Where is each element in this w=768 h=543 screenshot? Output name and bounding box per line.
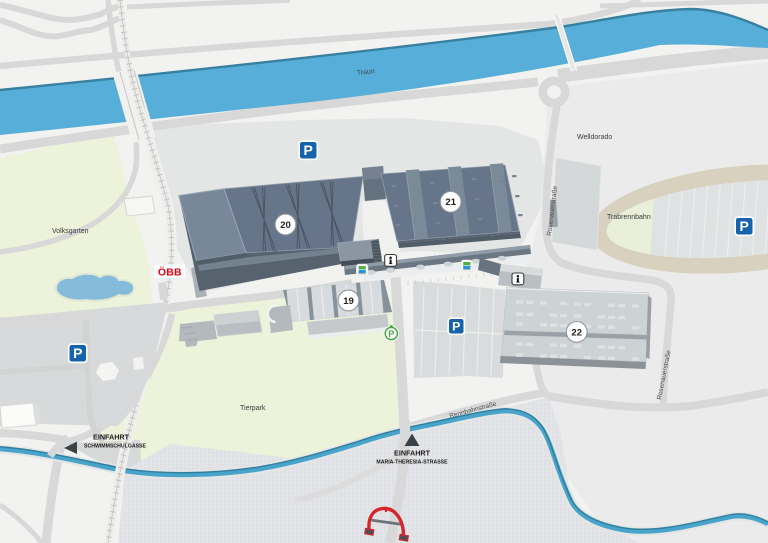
svg-text:P: P [452, 319, 460, 333]
svg-text:EINFAHRT: EINFAHRT [93, 433, 130, 442]
svg-text:P: P [73, 345, 82, 361]
svg-text:P: P [304, 142, 313, 158]
svg-text:Welldorado: Welldorado [577, 134, 612, 141]
svg-text:19: 19 [343, 296, 354, 307]
svg-text:Volksgarten: Volksgarten [52, 228, 89, 235]
svg-text:SCHWIMMSCHULGASSE: SCHWIMMSCHULGASSE [84, 443, 147, 449]
svg-text:22: 22 [571, 327, 582, 338]
svg-text:21: 21 [445, 197, 456, 208]
svg-text:ÖBB: ÖBB [158, 265, 182, 278]
svg-text:P: P [388, 329, 394, 339]
svg-text:20: 20 [280, 220, 291, 231]
svg-text:P: P [740, 218, 749, 234]
svg-text:EINFAHRT: EINFAHRT [394, 449, 431, 458]
svg-text:Trabrennbahn: Trabrennbahn [607, 214, 651, 221]
svg-text:MARIA-THERESIA-STRASSE: MARIA-THERESIA-STRASSE [376, 459, 448, 465]
svg-text:Tierpark: Tierpark [240, 405, 266, 412]
